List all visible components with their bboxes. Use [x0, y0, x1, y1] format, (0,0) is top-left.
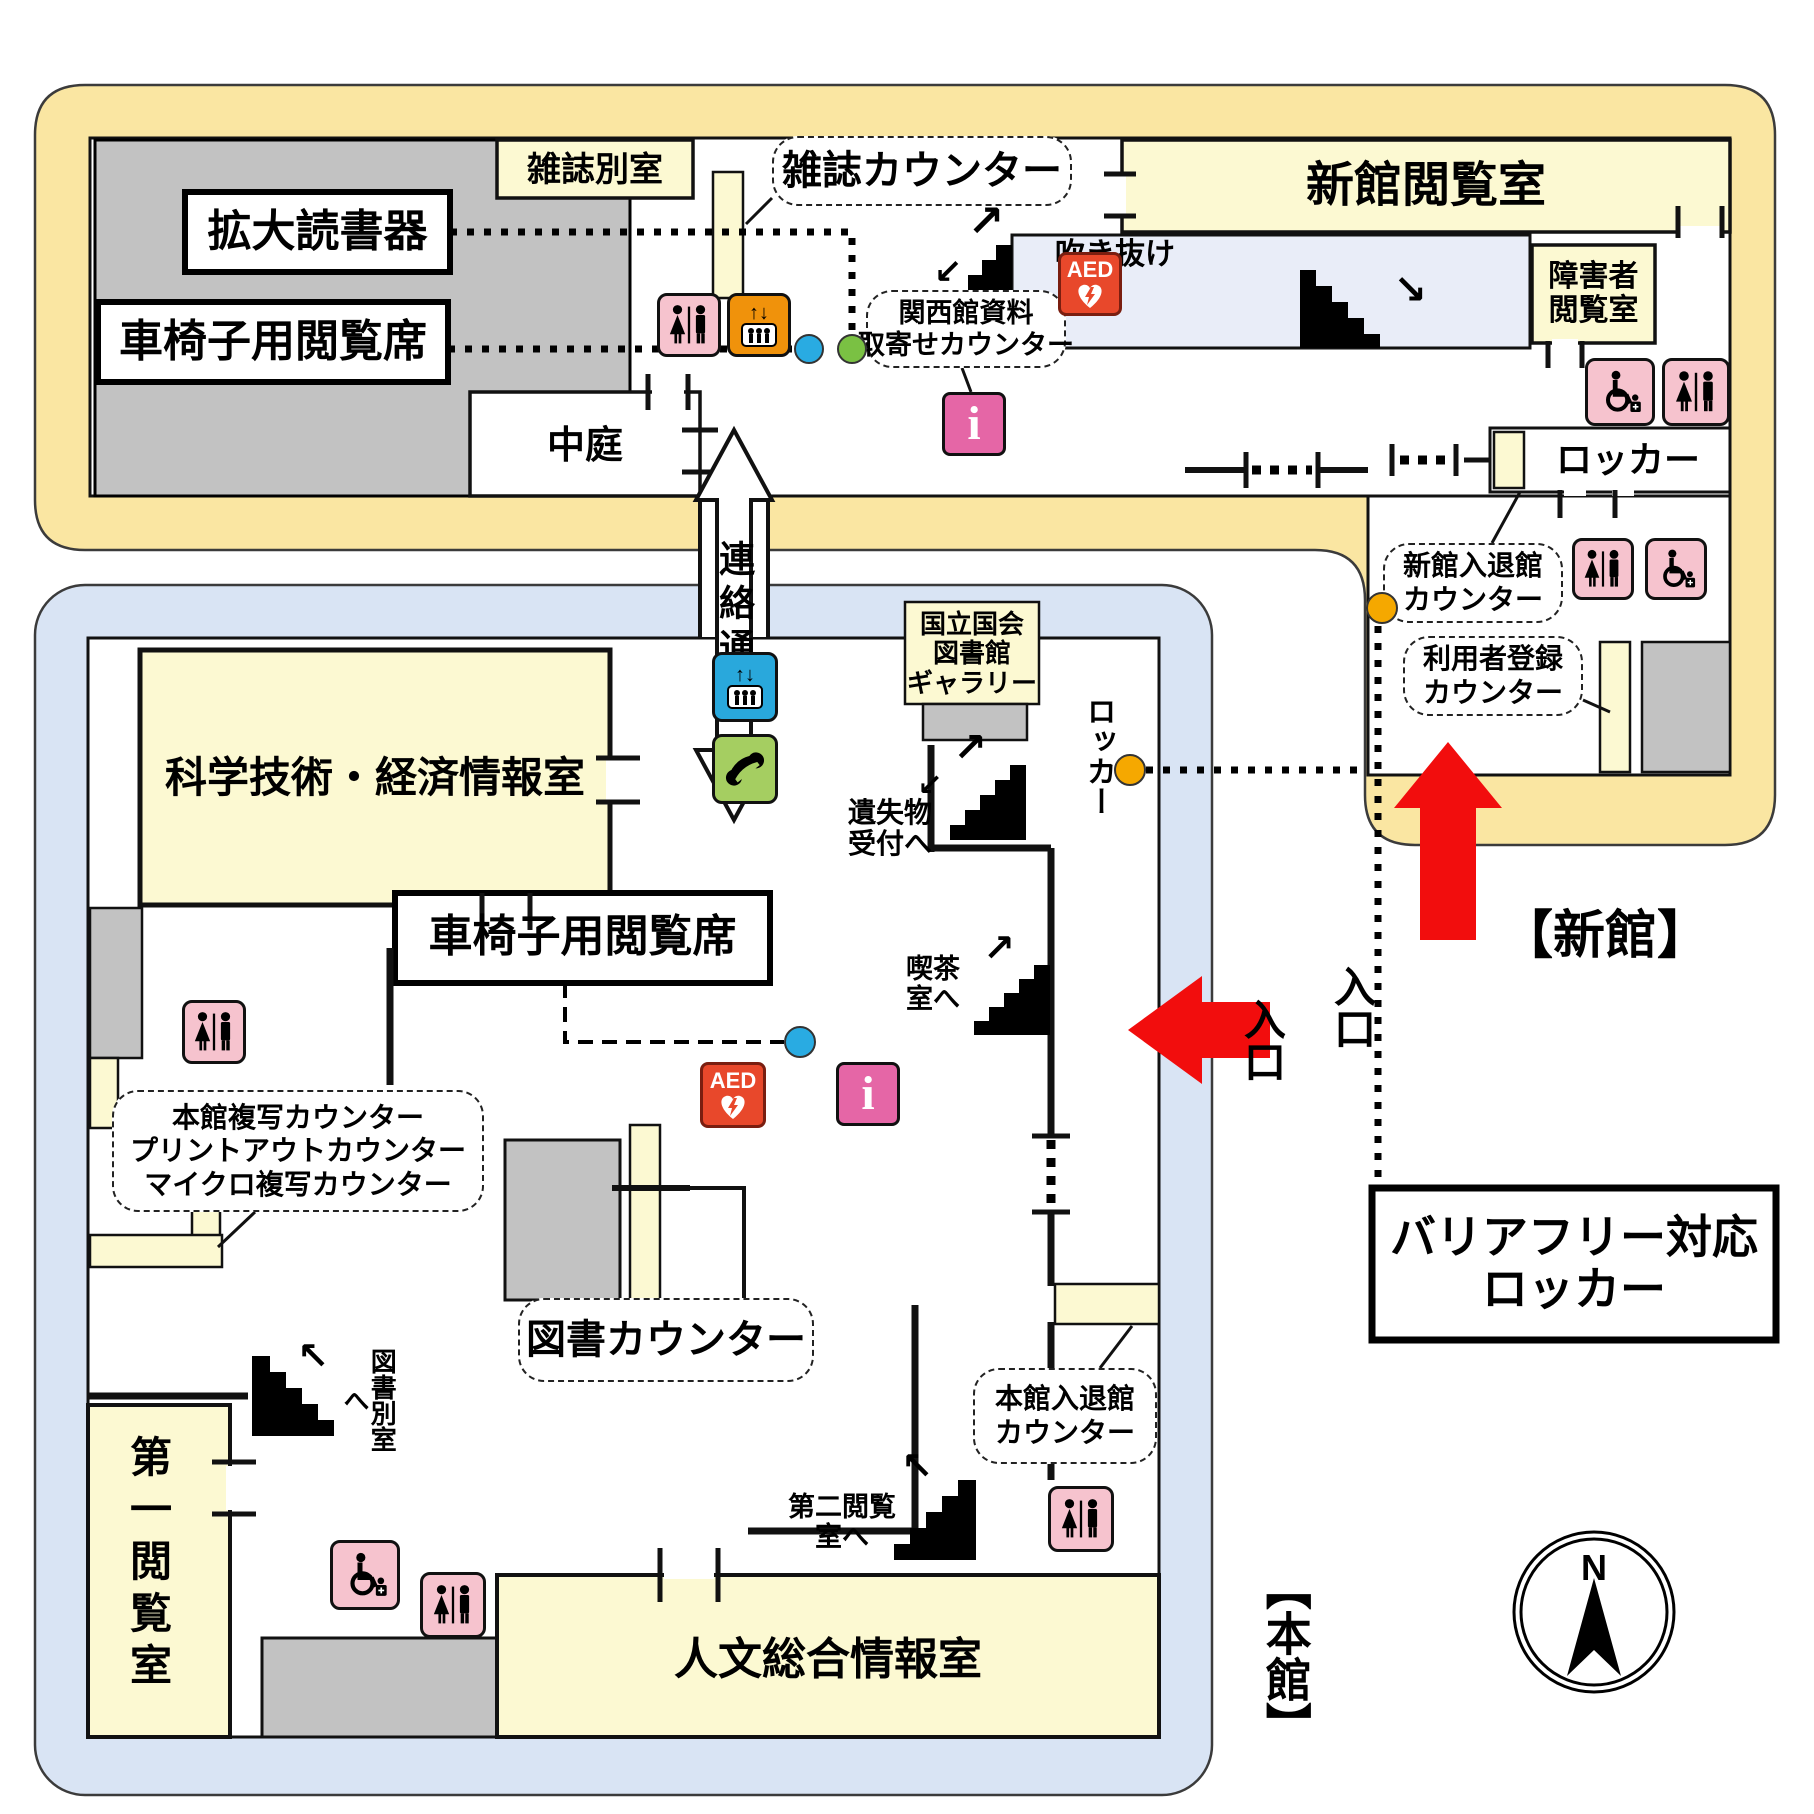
up-left-arrow-icon: ↖ — [292, 1336, 334, 1378]
floor-map: 拡大読書器 車椅子用閲覧席 雑誌別室 新館閲覧室 吹き抜け 障害者 閲覧室 中庭… — [0, 0, 1814, 1814]
entrance-label-shinkan: 入口 — [1330, 952, 1374, 1062]
note-kissa: 喫茶 室へ — [893, 953, 973, 1015]
marker-dot-blue — [784, 1026, 816, 1058]
up-right-arrow-icon: ↖ — [896, 1446, 938, 1488]
accessible-toilet-icon — [1585, 358, 1655, 426]
elevator-arrows: ↑↓ — [735, 665, 755, 685]
kansaikan-line2: 取寄せカウンター — [858, 329, 1074, 361]
marker-dot-orange — [1366, 592, 1398, 624]
note-tosho-besshitsu: 図書別室へ — [336, 1340, 400, 1460]
gallery-line3: ギャラリー — [907, 669, 1037, 698]
down-left-arrow-icon: ↙ — [928, 252, 968, 292]
fukusha-line2: プリントアウトカウンター — [130, 1134, 466, 1168]
callout-riyosha-toroku: 利用者登録 カウンター — [1403, 636, 1583, 716]
up-right-arrow-icon: ↗ — [948, 726, 992, 770]
riyosha-line1: 利用者登録 — [1423, 642, 1563, 676]
room-kagaku-keizai: 科学技術・経済情報室 — [140, 752, 610, 804]
aed-icon: AED — [700, 1062, 766, 1128]
room-shogaisha-line1: 障害者 — [1549, 260, 1639, 294]
room-locker-honkan: ロッカー — [1078, 686, 1118, 826]
callout-kansaikan-toriyose: 関西館資料 取寄せカウンター — [866, 290, 1066, 368]
toilet-icon — [420, 1572, 486, 1638]
down-right-arrow-icon: ↘ — [1388, 268, 1432, 312]
tag-honkan: 【本館】 — [1256, 1548, 1314, 1763]
room-shinkan-etsuranshitsu: 新館閲覧室 — [1122, 158, 1730, 214]
aed-label: AED — [710, 1070, 756, 1092]
room-jinbun-sogo: 人文総合情報室 — [497, 1632, 1159, 1688]
room-gallery: 国立国会 図書館 ギャラリー — [905, 608, 1039, 700]
toilet-icon — [1572, 538, 1634, 600]
entrance-label-honkan: 入口 — [1240, 985, 1284, 1095]
shinkan-entry-line2: カウンター — [1403, 583, 1543, 617]
aed-label: AED — [1067, 259, 1113, 281]
elevator-icon: ↑↓ — [727, 293, 791, 357]
kissa-line1: 喫茶 — [906, 954, 960, 984]
toilet-icon — [182, 1000, 246, 1064]
callout-shinkan-entry: 新館入退館 カウンター — [1383, 543, 1563, 623]
fukusha-line3: マイクロ複写カウンター — [144, 1168, 451, 1202]
up-right-arrow-icon: ↗ — [978, 928, 1020, 970]
shinkan-entry-line1: 新館入退館 — [1403, 549, 1543, 583]
marker-dot-orange — [1114, 754, 1146, 786]
kurumaisu-honkan-label: 車椅子用閲覧席 — [395, 905, 770, 969]
note-ishitsubutsu: 遺失物 受付へ — [845, 795, 935, 861]
up-right-arrow-icon: ↗ — [962, 198, 1010, 246]
daini-line2: 室へ — [815, 1522, 869, 1552]
callout-zasshi-counter: 雑誌カウンター — [772, 136, 1072, 206]
info-label: i — [967, 400, 980, 448]
barrier-free-line2: ロッカー — [1482, 1264, 1666, 1316]
tag-shinkan: 【新館】 — [1460, 905, 1750, 967]
elevator-icon: ↑↓ — [712, 652, 778, 722]
toilet-icon — [657, 293, 721, 357]
elevator-arrows: ↑↓ — [749, 303, 769, 323]
room-shogaisha-etsuranshitsu: 障害者 閲覧室 — [1532, 252, 1655, 336]
note-daini: 第二閲覧 室へ — [786, 1492, 898, 1552]
callout-tosho-counter: 図書カウンター — [518, 1298, 814, 1382]
room-shogaisha-line2: 閲覧室 — [1549, 294, 1639, 328]
barrier-free-line1: バリアフリー対応 — [1390, 1212, 1758, 1264]
down-left-arrow-icon: ↙ — [912, 768, 948, 804]
info-icon: i — [942, 392, 1006, 456]
aed-icon: AED — [1058, 252, 1122, 316]
room-daiichi-etsuranshitsu: 第一閲覧室 — [118, 1435, 178, 1695]
fukusha-line1: 本館複写カウンター — [172, 1101, 424, 1135]
toilet-icon — [1048, 1486, 1114, 1552]
gallery-line1: 国立国会 — [920, 610, 1024, 639]
accessible-toilet-icon — [330, 1540, 400, 1610]
info-icon: i — [836, 1062, 900, 1126]
room-nakaniwa: 中庭 — [470, 424, 700, 468]
callout-fukusha-counters: 本館複写カウンター プリントアウトカウンター マイクロ複写カウンター — [112, 1090, 484, 1212]
kurumaisu-shinkan-label: 車椅子用閲覧席 — [98, 312, 448, 372]
riyosha-line2: カウンター — [1423, 676, 1563, 710]
kansaikan-line1: 関西館資料 — [899, 297, 1034, 329]
phone-icon — [712, 734, 778, 804]
daini-line1: 第二閲覧 — [788, 1492, 896, 1522]
room-zasshi-besshitsu: 雑誌別室 — [497, 146, 693, 194]
marker-dot-blue — [794, 334, 824, 364]
kissa-line2: 室へ — [906, 984, 960, 1014]
zasshi-counter-text: 雑誌カウンター — [782, 147, 1062, 195]
callout-honkan-entry: 本館入退館 カウンター — [973, 1368, 1157, 1464]
marker-dot-green — [837, 334, 867, 364]
kakudai-dokushoki-label: 拡大読書器 — [185, 200, 450, 264]
tosho-counter-text: 図書カウンター — [526, 1316, 806, 1364]
barrier-free-locker-box: バリアフリー対応 ロッカー — [1372, 1194, 1776, 1334]
ishitsubutsu-line2: 受付へ — [848, 828, 932, 859]
info-label: i — [861, 1070, 874, 1118]
honkan-entry-line2: カウンター — [995, 1416, 1135, 1450]
gallery-line2: 図書館 — [933, 639, 1011, 668]
toilet-icon — [1662, 358, 1730, 426]
honkan-entry-line1: 本館入退館 — [995, 1382, 1135, 1416]
room-locker-shinkan: ロッカー — [1528, 438, 1728, 482]
compass-north-label: N — [1572, 1548, 1616, 1588]
accessible-toilet-icon — [1645, 538, 1707, 600]
